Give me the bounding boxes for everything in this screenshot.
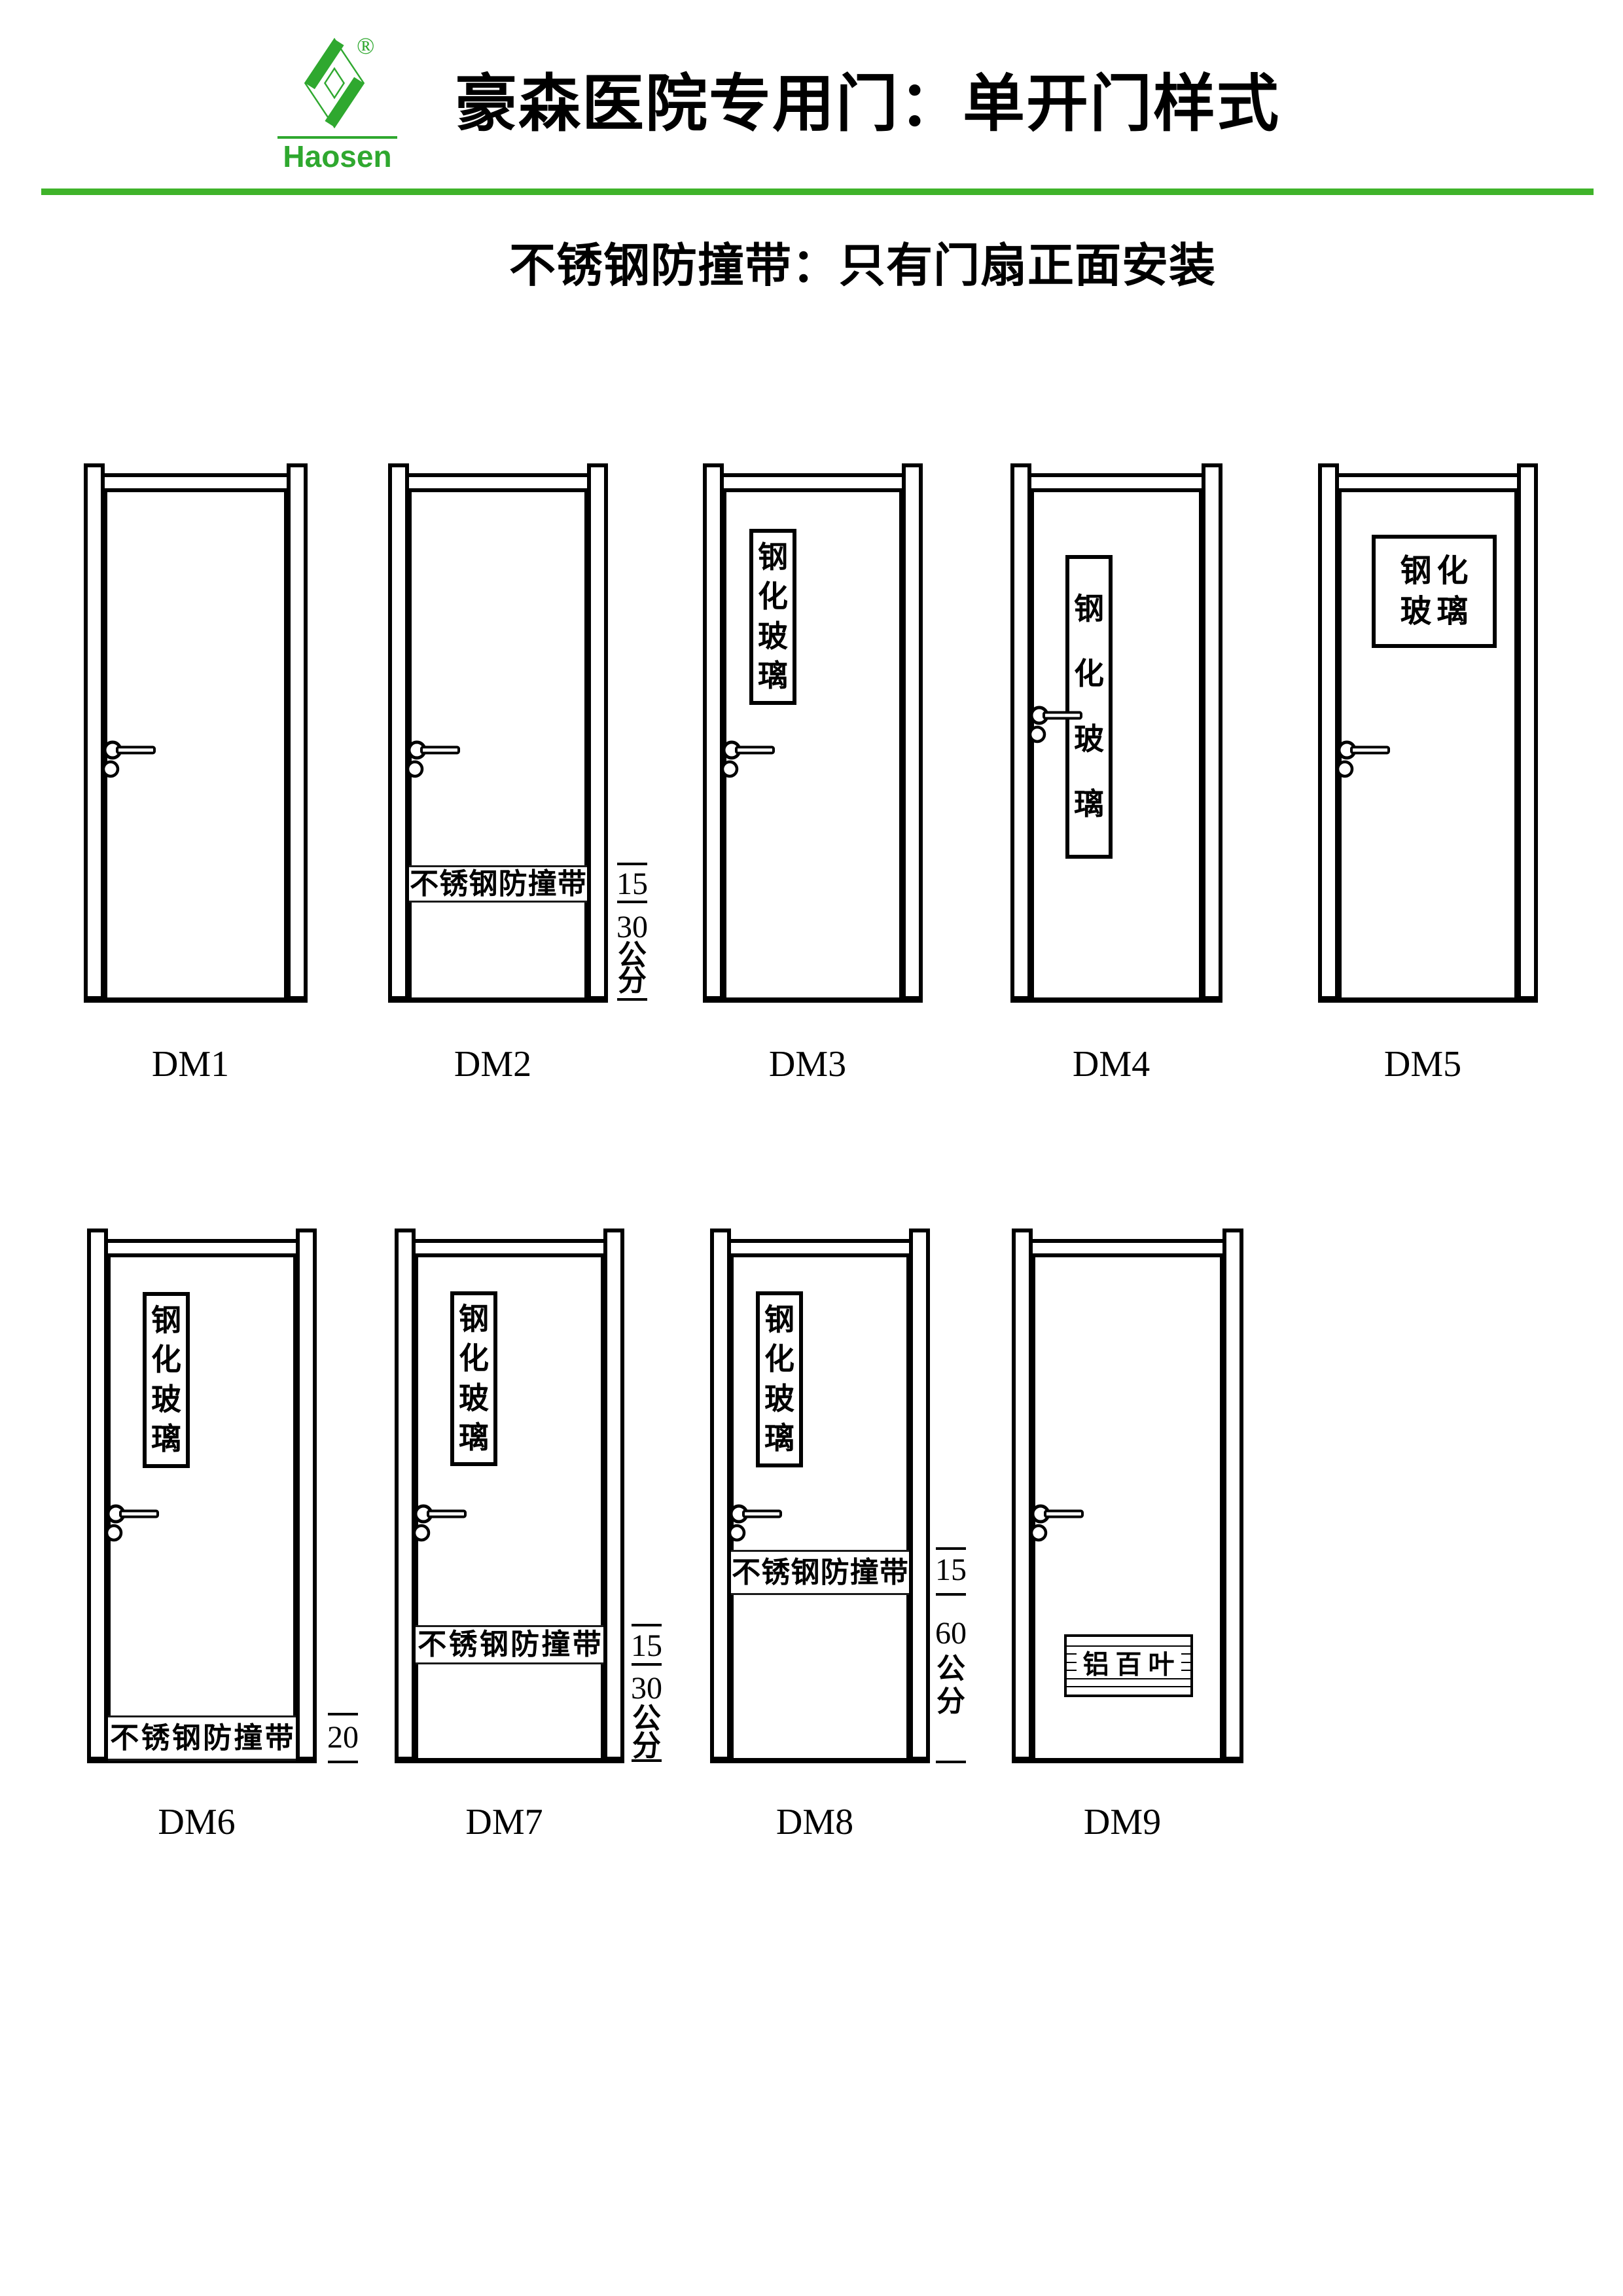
louver-label: 铝百叶 xyxy=(1077,1651,1181,1677)
door-lintel xyxy=(1033,1239,1222,1257)
bumper-band-label: 带 xyxy=(558,870,586,899)
glass-panel-label: 玻璃 xyxy=(1395,596,1473,628)
dim-label: 分 xyxy=(632,1732,661,1761)
dim-tick xyxy=(632,1663,662,1666)
door-lintel xyxy=(1031,473,1202,492)
door-frame-post-left xyxy=(84,463,105,1000)
dim-label: 20 xyxy=(327,1722,359,1753)
bumper-band-label: 锈 xyxy=(449,1630,478,1659)
door-label: DM4 xyxy=(1073,1046,1150,1083)
dim-tick xyxy=(936,1547,966,1550)
dim-tick xyxy=(617,901,647,903)
bumper-band-label: 不 xyxy=(732,1558,760,1587)
door-label: DM9 xyxy=(1084,1804,1161,1840)
dim-label: 15 xyxy=(616,869,648,900)
door-label: DM7 xyxy=(465,1804,543,1840)
door-lintel xyxy=(1339,473,1517,492)
door-frame-post-right xyxy=(603,1229,624,1761)
page-title: 豪森医院专用门：单开门样式 xyxy=(455,73,1280,135)
dim-tick xyxy=(617,998,647,1001)
door-lintel xyxy=(108,1239,296,1257)
door-frame-post-right xyxy=(909,1229,930,1761)
door-frame-post-left xyxy=(395,1229,416,1761)
bumper-band-label: 不 xyxy=(110,1724,139,1753)
dim-label: 15 xyxy=(935,1554,967,1586)
bumper-band-label: 带 xyxy=(573,1630,601,1659)
dim-tick xyxy=(632,1624,662,1626)
bumper-band-label: 防 xyxy=(510,1630,539,1659)
door-lintel xyxy=(105,473,287,492)
bumper-band-label: 锈 xyxy=(141,1724,170,1753)
door-frame-post-left xyxy=(703,463,724,1000)
door-frame-post-left xyxy=(87,1229,108,1761)
glass-panel-label: 玻 xyxy=(758,622,788,652)
bumper-band-label: 锈 xyxy=(439,870,468,899)
bumper-band: 不锈钢防撞带 xyxy=(731,1550,909,1595)
door-handle-icon xyxy=(405,736,465,786)
door-floor-line xyxy=(84,997,308,1003)
registered-trademark-icon: ® xyxy=(357,34,374,58)
dim-tick xyxy=(328,1713,358,1715)
door-lintel xyxy=(409,473,587,492)
glass-panel-label: 玻 xyxy=(151,1385,181,1415)
door-floor-line xyxy=(1010,997,1222,1003)
door-label: DM6 xyxy=(158,1804,235,1840)
door-handle-icon xyxy=(1335,736,1395,786)
door-handle-icon xyxy=(1029,1500,1089,1550)
bumper-band: 不锈钢防撞带 xyxy=(108,1715,296,1761)
glass-panel-label: 化 xyxy=(758,582,788,612)
glass-panel-label: 璃 xyxy=(1074,789,1104,819)
door-frame-post-left xyxy=(1012,1229,1033,1761)
glass-panel-label: 化 xyxy=(459,1344,489,1374)
door-label: DM3 xyxy=(769,1046,846,1083)
louver-slat xyxy=(1067,1686,1190,1687)
page: ® Haosen 豪森医院专用门：单开门样式 不锈钢防撞带：只有门扇正面安装 D… xyxy=(0,0,1623,2296)
louver-slat xyxy=(1067,1645,1190,1647)
door-label: DM1 xyxy=(152,1046,229,1083)
bumper-band-label: 钢 xyxy=(791,1558,819,1587)
bumper-band-label: 防 xyxy=(821,1558,849,1587)
dim-tick xyxy=(632,1759,662,1762)
door-frame-post-left xyxy=(710,1229,731,1761)
glass-panel-label: 化 xyxy=(151,1345,181,1375)
glass-panel-label: 璃 xyxy=(758,661,788,691)
bumper-band-label: 不 xyxy=(410,870,438,899)
door-floor-line xyxy=(388,997,608,1003)
dim-label: 30 xyxy=(631,1673,662,1704)
dim-label: 分 xyxy=(936,1687,965,1716)
bumper-band: 不锈钢防撞带 xyxy=(409,865,587,903)
dim-tick xyxy=(617,863,647,865)
dim-label: 60 xyxy=(935,1618,967,1649)
door-frame-post-right xyxy=(902,463,923,1000)
door-frame-post-right xyxy=(1222,1229,1243,1761)
bumper-band-label: 钢 xyxy=(469,870,497,899)
glass-panel-label: 化 xyxy=(764,1344,794,1374)
bumper-band-label: 带 xyxy=(265,1724,294,1753)
glass-panel-label: 璃 xyxy=(459,1423,489,1453)
door-floor-line xyxy=(395,1758,624,1763)
glass-panel-label: 钢 xyxy=(758,543,788,573)
bumper-band-label: 不 xyxy=(418,1630,446,1659)
dim-label: 30 xyxy=(616,912,648,943)
glass-panel-label: 钢 xyxy=(151,1306,181,1336)
door-frame-post-right xyxy=(587,463,608,1000)
dim-tick xyxy=(328,1761,358,1763)
door-label: DM2 xyxy=(454,1046,531,1083)
glass-panel-label: 璃 xyxy=(764,1424,794,1454)
door-frame-post-right xyxy=(296,1229,317,1761)
door-handle-icon xyxy=(104,1500,164,1550)
door-label: DM5 xyxy=(1384,1046,1461,1083)
glass-panel: 钢化玻璃 xyxy=(749,529,796,705)
bumper-band-label: 撞 xyxy=(234,1724,262,1753)
page-subtitle: 不锈钢防撞带：只有门扇正面安装 xyxy=(509,243,1216,290)
door-lintel xyxy=(731,1239,909,1257)
glass-panel-label: 钢 xyxy=(459,1304,489,1335)
bumper-band-label: 带 xyxy=(880,1558,908,1587)
glass-panel-label: 钢 xyxy=(764,1305,794,1335)
glass-panel-label: 钢化 xyxy=(1395,556,1473,587)
glass-panel-label: 玻 xyxy=(459,1384,489,1414)
door-handle-icon xyxy=(727,1500,787,1550)
louver-panel: 铝百叶 xyxy=(1064,1634,1193,1697)
door-frame-post-left xyxy=(1318,463,1339,1000)
logo-underline xyxy=(277,136,397,139)
door-lintel xyxy=(724,473,902,492)
glass-panel: 钢化玻璃 xyxy=(1372,535,1497,648)
bumper-band: 不锈钢防撞带 xyxy=(416,1625,603,1664)
door-floor-line xyxy=(710,1758,930,1763)
bumper-band-label: 钢 xyxy=(480,1630,508,1659)
bumper-band-label: 防 xyxy=(203,1724,232,1753)
door-frame-post-left xyxy=(388,463,409,1000)
door-frame-post-right xyxy=(287,463,308,1000)
door-frame-post-right xyxy=(1517,463,1538,1000)
door-handle-icon xyxy=(720,736,780,786)
door-frame-post-right xyxy=(1202,463,1222,1000)
door-floor-line xyxy=(1318,997,1538,1003)
door-floor-line xyxy=(703,997,923,1003)
bumper-band-label: 撞 xyxy=(541,1630,570,1659)
dim-label: 分 xyxy=(618,967,647,996)
door-floor-line xyxy=(1012,1758,1243,1763)
bumper-band-label: 锈 xyxy=(761,1558,790,1587)
door-handle-icon xyxy=(101,736,161,786)
dim-tick xyxy=(936,1761,966,1763)
glass-panel: 钢化玻璃 xyxy=(450,1291,497,1466)
glass-panel: 钢化玻璃 xyxy=(756,1291,803,1467)
header-divider xyxy=(41,188,1594,195)
dim-label: 公 xyxy=(936,1655,965,1683)
dim-label: 15 xyxy=(631,1630,662,1662)
glass-panel-label: 化 xyxy=(1074,659,1104,689)
bumper-band-label: 撞 xyxy=(528,870,557,899)
glass-panel-label: 钢 xyxy=(1074,594,1104,624)
dim-tick xyxy=(936,1593,966,1596)
dim-label: 公 xyxy=(632,1704,661,1733)
bumper-band-label: 撞 xyxy=(850,1558,879,1587)
door-lintel xyxy=(416,1239,603,1257)
door-handle-icon xyxy=(412,1500,472,1550)
bumper-band-label: 钢 xyxy=(172,1724,201,1753)
brand-name: Haosen xyxy=(277,141,397,171)
door-handle-icon xyxy=(1027,702,1088,751)
bumper-band-label: 防 xyxy=(499,870,527,899)
glass-panel-label: 璃 xyxy=(151,1424,181,1454)
glass-panel: 钢化玻璃 xyxy=(143,1292,190,1468)
glass-panel-label: 玻 xyxy=(764,1384,794,1414)
door-label: DM8 xyxy=(776,1804,853,1840)
